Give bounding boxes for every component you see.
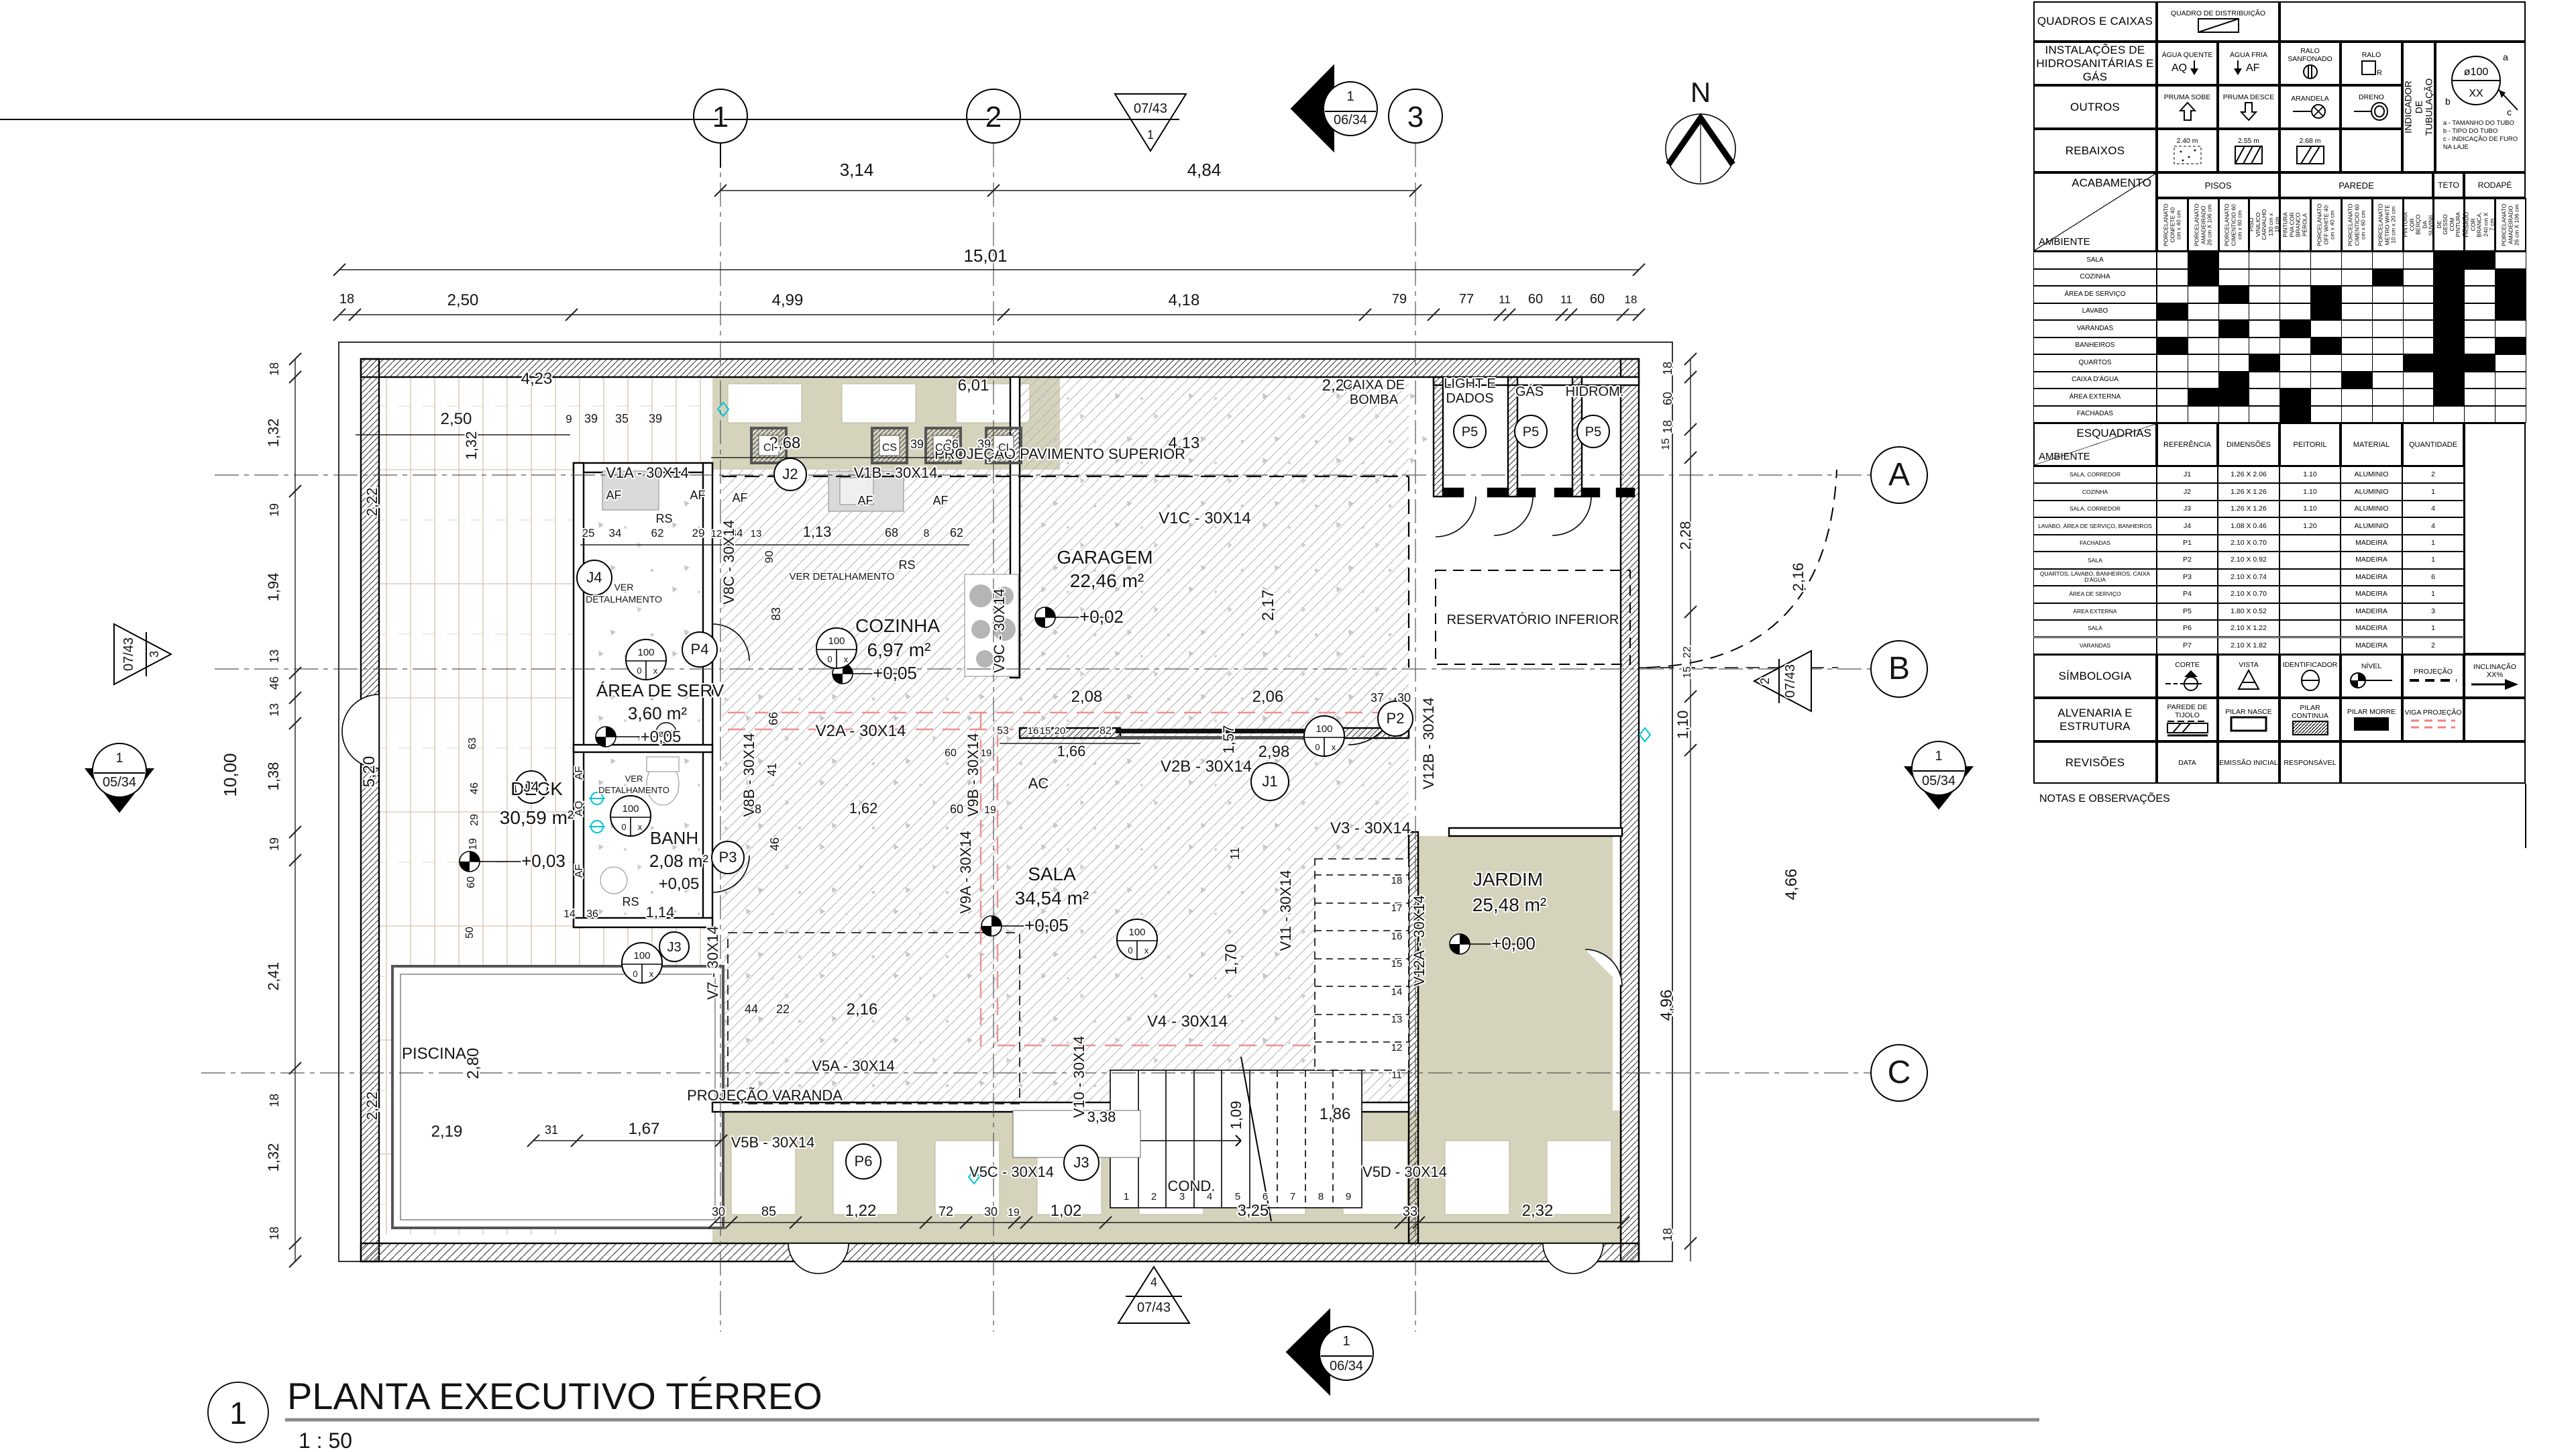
dim-text: 44 (745, 1002, 758, 1016)
beam-label: V12B - 30X14 (1420, 698, 1437, 790)
room-label: SALA (1028, 864, 1076, 884)
dim-text: 4,84 (1187, 160, 1222, 180)
room-area: 3,60 m² (628, 703, 687, 723)
room-label: GARAGEM (1057, 547, 1152, 568)
beam-label: V5C - 30X14 (969, 1163, 1054, 1180)
marker-text: 1 (1342, 1334, 1350, 1349)
dim-text: 2,22 (364, 488, 380, 517)
dim-text: 1,57 (1220, 725, 1237, 754)
label: DADOS (1446, 391, 1493, 406)
floor-plan: 123ABC07/431106/34407/43106/3407/433105/… (0, 0, 2576, 1452)
dim-text: 11 (1560, 293, 1572, 306)
dim-text: 18 (1661, 420, 1674, 433)
label: DETALHAMENTO (586, 594, 662, 605)
room-label: COZINHA (855, 615, 940, 636)
dim-text: 1,70 (1222, 944, 1240, 976)
grid-bubble-label: A (1888, 457, 1910, 492)
dim-text: 83 (769, 607, 783, 621)
room-label: BANH (650, 828, 698, 848)
north-arrow (1666, 114, 1735, 184)
beam-label: V5D - 30X14 (1362, 1163, 1447, 1180)
grid-bubble-label: 2 (985, 101, 1002, 134)
label: VER DETALHAMENTO (790, 571, 895, 582)
dim-text: 2,16 (1790, 563, 1807, 592)
label: AQ (574, 800, 585, 816)
dim-text: 19 (981, 747, 992, 759)
room-level: +0,05 (873, 663, 917, 683)
marker-text: 1 (1346, 89, 1354, 104)
label: CAIXA DE (1343, 378, 1405, 393)
dim-text: 2,28 (1677, 521, 1694, 550)
north-label: N (1690, 76, 1711, 108)
level-text: 0 (621, 822, 626, 832)
marker-text: 07/43 (1137, 1300, 1171, 1315)
dim-text: 2,41 (265, 962, 282, 991)
dim-text: 30 (984, 1205, 998, 1218)
label: PROJEÇÃO PAVIMENTO SUPERIOR (934, 446, 1185, 462)
beam-label: V1B - 30X14 (854, 464, 938, 481)
beam-label: V1A - 30X14 (606, 464, 689, 481)
dim-text: 2,16 (847, 1000, 878, 1019)
dim-text: 18 (1625, 293, 1638, 306)
level-text: 100 (633, 950, 650, 962)
beam-label: V1C - 30X14 (1159, 509, 1250, 527)
grid-bubble-label: 1 (712, 101, 729, 134)
dim-text: 39 (584, 412, 598, 425)
label: DETALHAMENTO (598, 785, 669, 795)
dim-text: 68 (885, 526, 898, 539)
dim-text: 4,66 (1782, 869, 1801, 900)
level-text: 100 (622, 803, 639, 815)
label: BOMBA (1350, 393, 1399, 407)
label: AF (574, 864, 585, 878)
lavatory (600, 867, 627, 894)
room-level: +0,00 (1491, 933, 1536, 953)
dim-text: 85 (761, 1204, 776, 1219)
marker-text: 1 (1147, 128, 1154, 142)
dim-text: 22 (776, 1002, 790, 1016)
dim-text: 20 (1055, 725, 1066, 737)
dim-text: 19 (268, 837, 281, 851)
dim-text: 1,62 (849, 800, 878, 817)
component-tag: J2 (782, 466, 798, 482)
dim-text: 46 (469, 782, 480, 794)
beam-label: V5B - 30X14 (731, 1134, 815, 1151)
beam-label: V9B - 30X14 (965, 733, 981, 817)
room-area: 22,46 m² (1070, 570, 1144, 591)
room-area: 34,54 m² (1015, 888, 1089, 909)
dim-text: 63 (467, 737, 478, 749)
dim-text: 18 (268, 362, 281, 376)
marker-text: 05/34 (1922, 774, 1955, 788)
label: CG (935, 442, 951, 454)
dim-text: 1,02 (1051, 1202, 1082, 1220)
beam-label: V10 - 30X14 (1071, 1036, 1087, 1118)
dim-text: 1,10 (1674, 711, 1691, 739)
stair-num: 18 (1391, 875, 1403, 886)
dim-text: 33 (1403, 1204, 1417, 1219)
dim-text: 29 (469, 814, 480, 826)
dim-text: 66 (767, 712, 780, 725)
level-text: 0 (827, 654, 832, 664)
beam-label: V8B - 30X14 (741, 733, 757, 817)
component-tag: P3 (719, 849, 737, 866)
level-text: x (1332, 742, 1336, 752)
dim-text: 22 (1682, 646, 1693, 658)
level-text: 100 (1128, 927, 1145, 938)
drawing-sheet: 123ABC07/431106/34407/43106/3407/433105/… (0, 0, 2576, 1452)
beam-label: V9C - 30X14 (991, 588, 1008, 673)
dim-text: 82 (1099, 725, 1112, 737)
stair-num: 16 (1391, 931, 1403, 942)
dim-text: 8 (924, 528, 930, 539)
level-text: 100 (637, 647, 654, 658)
dim-text: 31 (545, 1123, 558, 1137)
dim-text: 15,01 (963, 246, 1007, 266)
stair-num: 11 (1391, 1070, 1402, 1081)
room-area: 30,59 m² (500, 807, 574, 828)
label: AF (606, 488, 621, 502)
dim-text: 41 (765, 763, 779, 776)
dim-text: 11 (1499, 293, 1511, 306)
dim-text: 39 (649, 412, 662, 425)
dim-text: 2,80 (464, 1048, 482, 1080)
stair-num: 7 (1290, 1191, 1295, 1202)
dim-text: 1,32 (265, 1143, 282, 1172)
dim-text: 60 (1590, 292, 1605, 307)
label: AF (932, 494, 948, 507)
dim-text: 1,13 (803, 523, 832, 540)
level-text: 0 (633, 969, 637, 979)
label: GÁS (1515, 384, 1544, 399)
label: CI (998, 442, 1009, 454)
label: RS (655, 512, 672, 525)
dim-text: 19 (1008, 1207, 1020, 1218)
room-level: +0,05 (659, 875, 700, 893)
dim-text: 13 (268, 703, 281, 717)
component-tag: P4 (691, 641, 709, 658)
level-text: 0 (1128, 945, 1132, 955)
grid-bubble-label: C (1888, 1055, 1911, 1090)
stair-num: 2 (1151, 1191, 1157, 1202)
beam-label: V2A - 30X14 (816, 722, 906, 740)
level-text: x (844, 654, 849, 664)
dim-text: 18 (339, 292, 354, 307)
stair-num: 14 (1391, 986, 1403, 998)
dim-text: 2,22 (364, 1092, 380, 1121)
room-level: +0,05 (1024, 915, 1069, 935)
dim-text: 13 (268, 650, 281, 663)
piscina (392, 966, 723, 1228)
stair-num: 15 (1391, 958, 1403, 970)
stair-num: 9 (1346, 1191, 1351, 1202)
dim-text: 60 (1661, 392, 1674, 405)
dim-text: 1,32 (463, 431, 480, 460)
dim-text: 1,22 (845, 1202, 877, 1220)
dim-text: 4,18 (1169, 291, 1200, 309)
level-text: 0 (637, 666, 641, 676)
dim-text: 46 (768, 837, 782, 851)
room-label: PISCINA (402, 1045, 466, 1063)
room-area: 25,48 m² (1472, 894, 1547, 915)
dim-text: 14 (563, 909, 576, 920)
label: AF (574, 766, 585, 780)
marker-text: 07/43 (121, 637, 136, 671)
title-text: PLANTA EXECUTIVO TÉRREO (287, 1375, 822, 1417)
label: VER (625, 774, 643, 784)
marker-text: 3 (148, 651, 161, 658)
dim-text: 60 (945, 747, 957, 759)
dim-text: 36 (586, 909, 598, 920)
label: RESERVATÓRIO INFERIOR (1447, 612, 1619, 627)
grid-bubble-label: B (1888, 651, 1910, 686)
level-text: 100 (1316, 723, 1332, 735)
label: PROJEÇÃO VARANDA (687, 1087, 843, 1104)
dim-text: 1,94 (265, 573, 282, 602)
beam-label: V9A - 30X14 (957, 831, 974, 914)
dim-text: 46 (268, 676, 281, 690)
dim-text: 1,38 (265, 762, 282, 791)
room-label: JARDIM (1473, 869, 1543, 890)
dim-text: 1,67 (629, 1120, 660, 1138)
dim-text: 60 (1528, 292, 1543, 307)
beam-label: V2B - 30X14 (1161, 758, 1252, 776)
label: LIGHT E (1444, 376, 1495, 391)
beam-label: V3 - 30X14 (1330, 819, 1411, 837)
dim-text: 50 (464, 927, 476, 939)
level-text: 0 (1315, 742, 1320, 752)
marker-text: 07/43 (1134, 101, 1167, 116)
dim-text: 5,20 (360, 756, 378, 788)
component-tag: J3 (1073, 1154, 1089, 1171)
marker-text: 06/34 (1330, 1359, 1363, 1373)
dim-text: 2,32 (1522, 1202, 1554, 1220)
component-tag: J3 (667, 940, 681, 955)
dim-text: 2,19 (431, 1123, 463, 1141)
title-number: 1 (229, 1396, 247, 1431)
dim-text: 30 (1397, 691, 1411, 705)
beam-label: V11 - 30X14 (1277, 870, 1294, 951)
dim-text: 4,99 (772, 291, 804, 309)
label: HIDROM. (1566, 384, 1624, 399)
marker-text: 1 (1935, 749, 1942, 764)
room-area: 2,08 m² (649, 851, 708, 871)
stair-num: 13 (1391, 1014, 1403, 1025)
beam-label: V4 - 30X14 (1147, 1013, 1228, 1031)
dim-text: 77 (1459, 292, 1474, 307)
component-tag: P5 (1523, 425, 1539, 439)
grid-bubble-label: 3 (1407, 101, 1424, 134)
level-text: x (649, 969, 654, 979)
component-tag: P5 (1585, 425, 1601, 439)
dim-text: 2,98 (1258, 743, 1290, 761)
dim-text: 62 (651, 527, 664, 539)
marker-text: 07/43 (1783, 664, 1798, 698)
room-level: +0,05 (641, 728, 682, 746)
dim-text: 1,86 (1320, 1105, 1351, 1123)
dim-text: 39 (910, 437, 924, 451)
dim-text: 4,23 (521, 370, 553, 388)
dim-text: 72 (938, 1204, 953, 1219)
dim-text: 30 (712, 1205, 725, 1218)
dim-text: 3,25 (1238, 1202, 1269, 1220)
stair-num: 8 (1318, 1191, 1324, 1202)
level-text: 100 (828, 635, 845, 647)
dim-text: 90 (763, 551, 775, 564)
marker-text: 06/34 (1334, 113, 1367, 127)
marker-text: 1 (115, 751, 123, 766)
dim-text: 53 (997, 725, 1009, 737)
dim-text: 10,00 (220, 753, 240, 796)
dim-text: 1,32 (265, 419, 282, 448)
label: AF (732, 491, 747, 505)
dim-text: 2,17 (1259, 590, 1277, 621)
label: AF (690, 488, 705, 502)
label: AF (857, 494, 873, 507)
level-text: x (653, 666, 658, 676)
room-area: 6,97 m² (867, 639, 931, 660)
dim-text: 9 (566, 413, 572, 425)
dim-text: 35 (615, 412, 629, 425)
component-tag: J1 (1262, 773, 1277, 790)
stair-num: 12 (1391, 1042, 1403, 1053)
stair-num: 3 (1179, 1191, 1185, 1202)
dim-text: 4,96 (1658, 990, 1676, 1021)
dim-text: 6,01 (958, 376, 989, 395)
level-text: x (638, 822, 643, 832)
dim-text: 18 (268, 1094, 281, 1107)
beam-label: V7 - 30X14 (704, 926, 721, 1000)
title-scale: 1 : 50 (299, 1429, 352, 1452)
component-tag: P5 (1462, 425, 1478, 439)
component-tag: J4 (586, 569, 602, 586)
room-level: +0,02 (1079, 607, 1124, 627)
stair-num: 1 (1124, 1191, 1129, 1202)
label: RS (898, 558, 915, 572)
label: VER (614, 582, 634, 592)
component-tag: P6 (855, 1153, 873, 1170)
dim-text: 3,38 (1087, 1108, 1116, 1125)
dim-text: 18 (1661, 362, 1674, 375)
dim-text: 13 (751, 528, 762, 539)
component-tag: J4 (523, 778, 539, 795)
gate-swing (1647, 470, 1837, 668)
marker-text: 4 (1150, 1276, 1157, 1289)
dim-text: 3,14 (840, 160, 874, 180)
marker-text: 2 (1758, 678, 1772, 684)
dim-text: 25 (582, 527, 595, 539)
stair-num: 5 (1235, 1191, 1240, 1202)
label: CI (763, 442, 774, 454)
beam-label: V8C - 30X14 (720, 520, 737, 605)
level-text: x (1144, 945, 1149, 955)
stair-num: 6 (1263, 1191, 1268, 1202)
room-level: +0,03 (521, 851, 566, 871)
label: AC (1028, 775, 1049, 792)
dim-text: 60 (466, 876, 477, 888)
dim-text: 15 (1040, 725, 1051, 737)
dim-text: 15 (1660, 438, 1672, 450)
room-label: ÁREA DE SERV (596, 680, 724, 701)
dim-text: 1,14 (646, 904, 675, 921)
dim-text: 11 (1228, 847, 1242, 860)
marker-text: 05/34 (103, 775, 136, 790)
dim-text: 18 (268, 1227, 281, 1240)
dim-text: 16 (1028, 725, 1039, 737)
dim-text: 19 (468, 838, 479, 850)
dim-text: 19 (268, 503, 281, 517)
label: CS (882, 442, 897, 454)
label: RS (622, 895, 639, 909)
dim-text: 60 (950, 802, 963, 816)
dim-text: 37 (1371, 691, 1384, 705)
dim-text: 2,06 (1252, 688, 1284, 706)
component-tag: P2 (1387, 710, 1405, 727)
beam-label: V12A - 30X14 (1411, 895, 1428, 986)
dim-text: 2,50 (441, 410, 472, 428)
dim-text: 79 (1392, 292, 1407, 307)
dim-text: 15 (1682, 666, 1693, 678)
dim-text: 2,08 (1071, 688, 1103, 706)
dim-text: 1,09 (1228, 1101, 1244, 1130)
dim-text: 1,66 (1057, 743, 1086, 760)
stair-num: 4 (1207, 1191, 1212, 1202)
dim-text: 2,50 (447, 291, 479, 309)
dim-text: 34 (609, 527, 622, 539)
dim-text: 29 (692, 527, 705, 539)
dim-text: 18 (1661, 1228, 1674, 1241)
dim-text: 62 (950, 526, 963, 539)
dim-text: 19 (984, 805, 996, 816)
stair-num: 17 (1391, 902, 1403, 914)
beam-label: V5A - 30X14 (812, 1057, 895, 1074)
